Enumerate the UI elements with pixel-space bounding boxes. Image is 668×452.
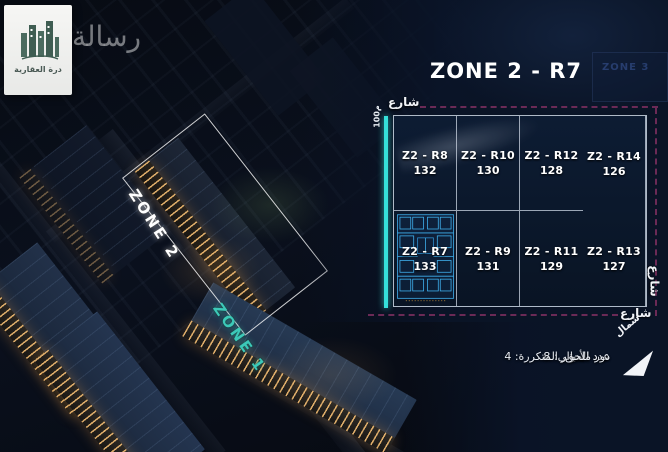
unit-number: 129 [540, 260, 563, 273]
unit-code: Z2 - R9 [465, 245, 511, 258]
unit-cell-z2-r9: Z2 - R9 131 [457, 211, 520, 306]
dashed-street-line-top [420, 106, 658, 108]
street-label-top: شارع [388, 95, 419, 109]
unit-code: Z2 - R12 [524, 149, 578, 162]
company-logo: درة العقارية [4, 5, 72, 95]
unit-cell-z2-r8: Z2 - R8 132 [394, 116, 457, 211]
buildings-logo-icon [20, 19, 60, 61]
unit-code: Z2 - R7 [402, 245, 448, 258]
logo-script-overlay: رسالة [72, 20, 141, 53]
unit-grid: Z2 - R8 132 Z2 - R10 130 Z2 - R12 128 Z2… [393, 115, 647, 307]
unit-cell-z2-r10: Z2 - R10 130 [457, 116, 520, 211]
street-label-right: شارع [648, 265, 662, 296]
north-arrow-icon [621, 345, 655, 377]
unit-number: 126 [603, 165, 626, 178]
site-plan-infographic: ZONE 2 ZONE 1 درة العقارية رسالة ZONE 2 … [0, 0, 668, 452]
unit-number: 127 [603, 260, 626, 273]
unit-number: 132 [414, 164, 437, 177]
unit-code: Z2 - R8 [402, 149, 448, 162]
annex-floor-line: دور ملحق [565, 348, 610, 366]
highlighted-street-line [384, 116, 388, 308]
unit-cell-z2-r11: Z2 - R11 129 [520, 211, 583, 306]
zone3-ghost-label: ZONE 3 [602, 62, 649, 73]
logo-subtitle: درة العقارية [7, 65, 69, 74]
panel-overlay-lower [300, 322, 668, 452]
unit-cell-z2-r12: Z2 - R12 128 [520, 116, 583, 211]
street-width-label: 100م [373, 102, 382, 132]
dashed-street-line-bottom [368, 314, 618, 316]
unit-number: 128 [540, 164, 563, 177]
unit-code: Z2 - R14 [587, 150, 641, 163]
unit-number: 133 [414, 260, 437, 273]
unit-cell-z2-r13: Z2 - R13 127 [583, 211, 646, 306]
floor-plan-blueprint [396, 213, 455, 304]
page-title: ZONE 2 - R7 [420, 59, 592, 83]
unit-number: 131 [477, 260, 500, 273]
unit-code: Z2 - R11 [524, 245, 578, 258]
unit-cell-z2-r7-highlighted: Z2 - R7 133 [394, 211, 457, 306]
unit-code: Z2 - R13 [587, 245, 641, 258]
zone3-ghost-box [592, 52, 668, 102]
unit-number: 130 [477, 164, 500, 177]
unit-code: Z2 - R10 [461, 149, 515, 162]
unit-cell-z2-r14: Z2 - R14 126 [583, 116, 646, 211]
